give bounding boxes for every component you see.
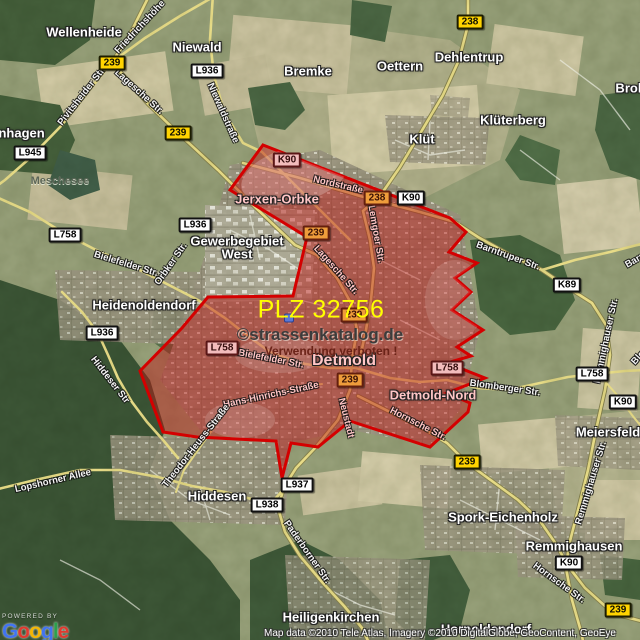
google-logo-letter: o xyxy=(29,620,41,640)
street-label-lagesche-str: Lagesche Str. xyxy=(311,243,361,296)
google-wordmark: Google xyxy=(2,622,68,640)
street-label-lemgoer-str: Lemgoer Str. xyxy=(366,204,387,263)
street-label-barntruper-str: Barntruper Str. xyxy=(475,239,542,272)
street-label-neustadt: Neustadt xyxy=(336,397,357,439)
map-copyright: Map data ©2010 Tele Atlas, Imagery ©2010… xyxy=(264,628,616,639)
place-label-remmighausen: Remmighausen xyxy=(526,539,623,554)
street-label-paderborner-str: Paderborner Str. xyxy=(281,518,333,585)
road-shield-239: 239 xyxy=(303,226,330,241)
place-label-oettern: Oettern xyxy=(377,59,423,74)
place-label-niewald: Niewald xyxy=(172,40,221,55)
watermark-warning: Verwendung verboten ! xyxy=(265,344,398,358)
street-label-barntruper-str: Barntruper Str. xyxy=(623,227,640,270)
road-shield-l758: L758 xyxy=(431,361,464,376)
road-shield-l937: L937 xyxy=(281,478,314,493)
road-shield-k90: K90 xyxy=(397,191,425,206)
road-shield-k90: K90 xyxy=(273,153,301,168)
road-shield-239: 239 xyxy=(605,603,632,618)
street-label-niewaldstra-e: Niewaldstraße xyxy=(205,81,241,144)
road-shield-l938: L938 xyxy=(251,498,284,513)
place-label-spork-eichenholz: Spork-Eichenholz xyxy=(448,510,558,525)
street-label-lagesche-str: Lagesche Str. xyxy=(112,67,165,117)
place-label-enhagen: enhagen xyxy=(0,126,45,141)
place-label-meiersfeld: Meiersfeld xyxy=(576,425,640,440)
place-label-dehlentrup: Dehlentrup xyxy=(435,50,504,65)
road-shield-l758: L758 xyxy=(576,367,609,382)
map-canvas[interactable]: enhagenWellenheideNiewaldBremkeOetternDe… xyxy=(0,0,640,640)
google-logo-letter: g xyxy=(41,620,53,640)
road-shield-l758: L758 xyxy=(206,341,239,356)
road-shield-l936: L936 xyxy=(86,326,119,341)
road-shield-l758: L758 xyxy=(49,228,82,243)
road-shield-239: 239 xyxy=(337,373,364,388)
street-label-hiddeser-str: Hiddeser Str xyxy=(88,354,131,405)
street-label-nordstra-e: Nordstraße xyxy=(312,174,364,196)
watermark: ©strassenkatalog.de xyxy=(237,325,404,345)
street-label-bielefelder-str: Bielefelder Str. xyxy=(93,249,160,279)
road-shield-k89: K89 xyxy=(553,278,581,293)
street-label-orbker-str: Orbker Str. xyxy=(152,241,189,288)
road-shield-239: 239 xyxy=(99,56,126,71)
road-shield-l936: L936 xyxy=(179,218,212,233)
road-shield-k90: K90 xyxy=(555,556,583,571)
road-shield-238: 238 xyxy=(364,191,391,206)
street-label-blomberger-str: Blomberger Str. xyxy=(469,378,541,399)
road-shield-l936: L936 xyxy=(191,64,224,79)
plz-overlay-label: PLZ 32756 xyxy=(258,296,385,325)
place-label-kl-t: Klüt xyxy=(409,132,434,147)
place-label-heidenoldendorf: Heidenoldendorf xyxy=(92,298,195,313)
street-label-hans-hinrichs-stra-e: Hans-Hinrichs-Straße xyxy=(222,380,319,411)
place-label-brokhausen: Brokhausen xyxy=(615,81,640,96)
place-label-heiligenkirchen: Heiligenkirchen xyxy=(283,610,380,625)
place-label-hiddesen: Hiddesen xyxy=(188,489,247,504)
google-logo-letter: e xyxy=(58,620,69,640)
place-label-detmold-nord: Detmold-Nord xyxy=(390,388,477,403)
place-label-jerxen-orbke: Jerxen-Orbke xyxy=(235,192,319,207)
place-label-meschesee: Meschesee xyxy=(31,175,90,187)
road-shield-239: 239 xyxy=(454,455,481,470)
place-label-kl-terberg: Klüterberg xyxy=(480,113,546,128)
road-shield-l945: L945 xyxy=(14,146,47,161)
street-label-hornsche-str: Hornsche Str. xyxy=(388,405,448,443)
street-label-remmighauser-str: Remmighauser Str. xyxy=(573,440,609,526)
street-label-lopshorner-allee: Lopshorner Allee xyxy=(14,467,92,495)
place-label-bremke: Bremke xyxy=(284,64,332,79)
street-label-theodor-heuss-stra-e: Theodor-Heuss-Straße xyxy=(160,402,232,489)
road-shield-238: 238 xyxy=(457,15,484,30)
road-shield-239: 239 xyxy=(165,126,192,141)
road-shield-k90: K90 xyxy=(609,395,637,410)
google-logo-letter: G xyxy=(2,620,17,640)
street-label-pivitsheider-str: Pivitsheider Str. xyxy=(56,64,109,127)
street-label-blomberger-str: Blomberger Str. xyxy=(629,307,640,367)
google-logo[interactable]: POWERED BY Google xyxy=(2,612,68,640)
place-label-west: West xyxy=(222,247,253,262)
place-label-wellenheide: Wellenheide xyxy=(46,25,122,40)
google-logo-letter: o xyxy=(17,620,29,640)
